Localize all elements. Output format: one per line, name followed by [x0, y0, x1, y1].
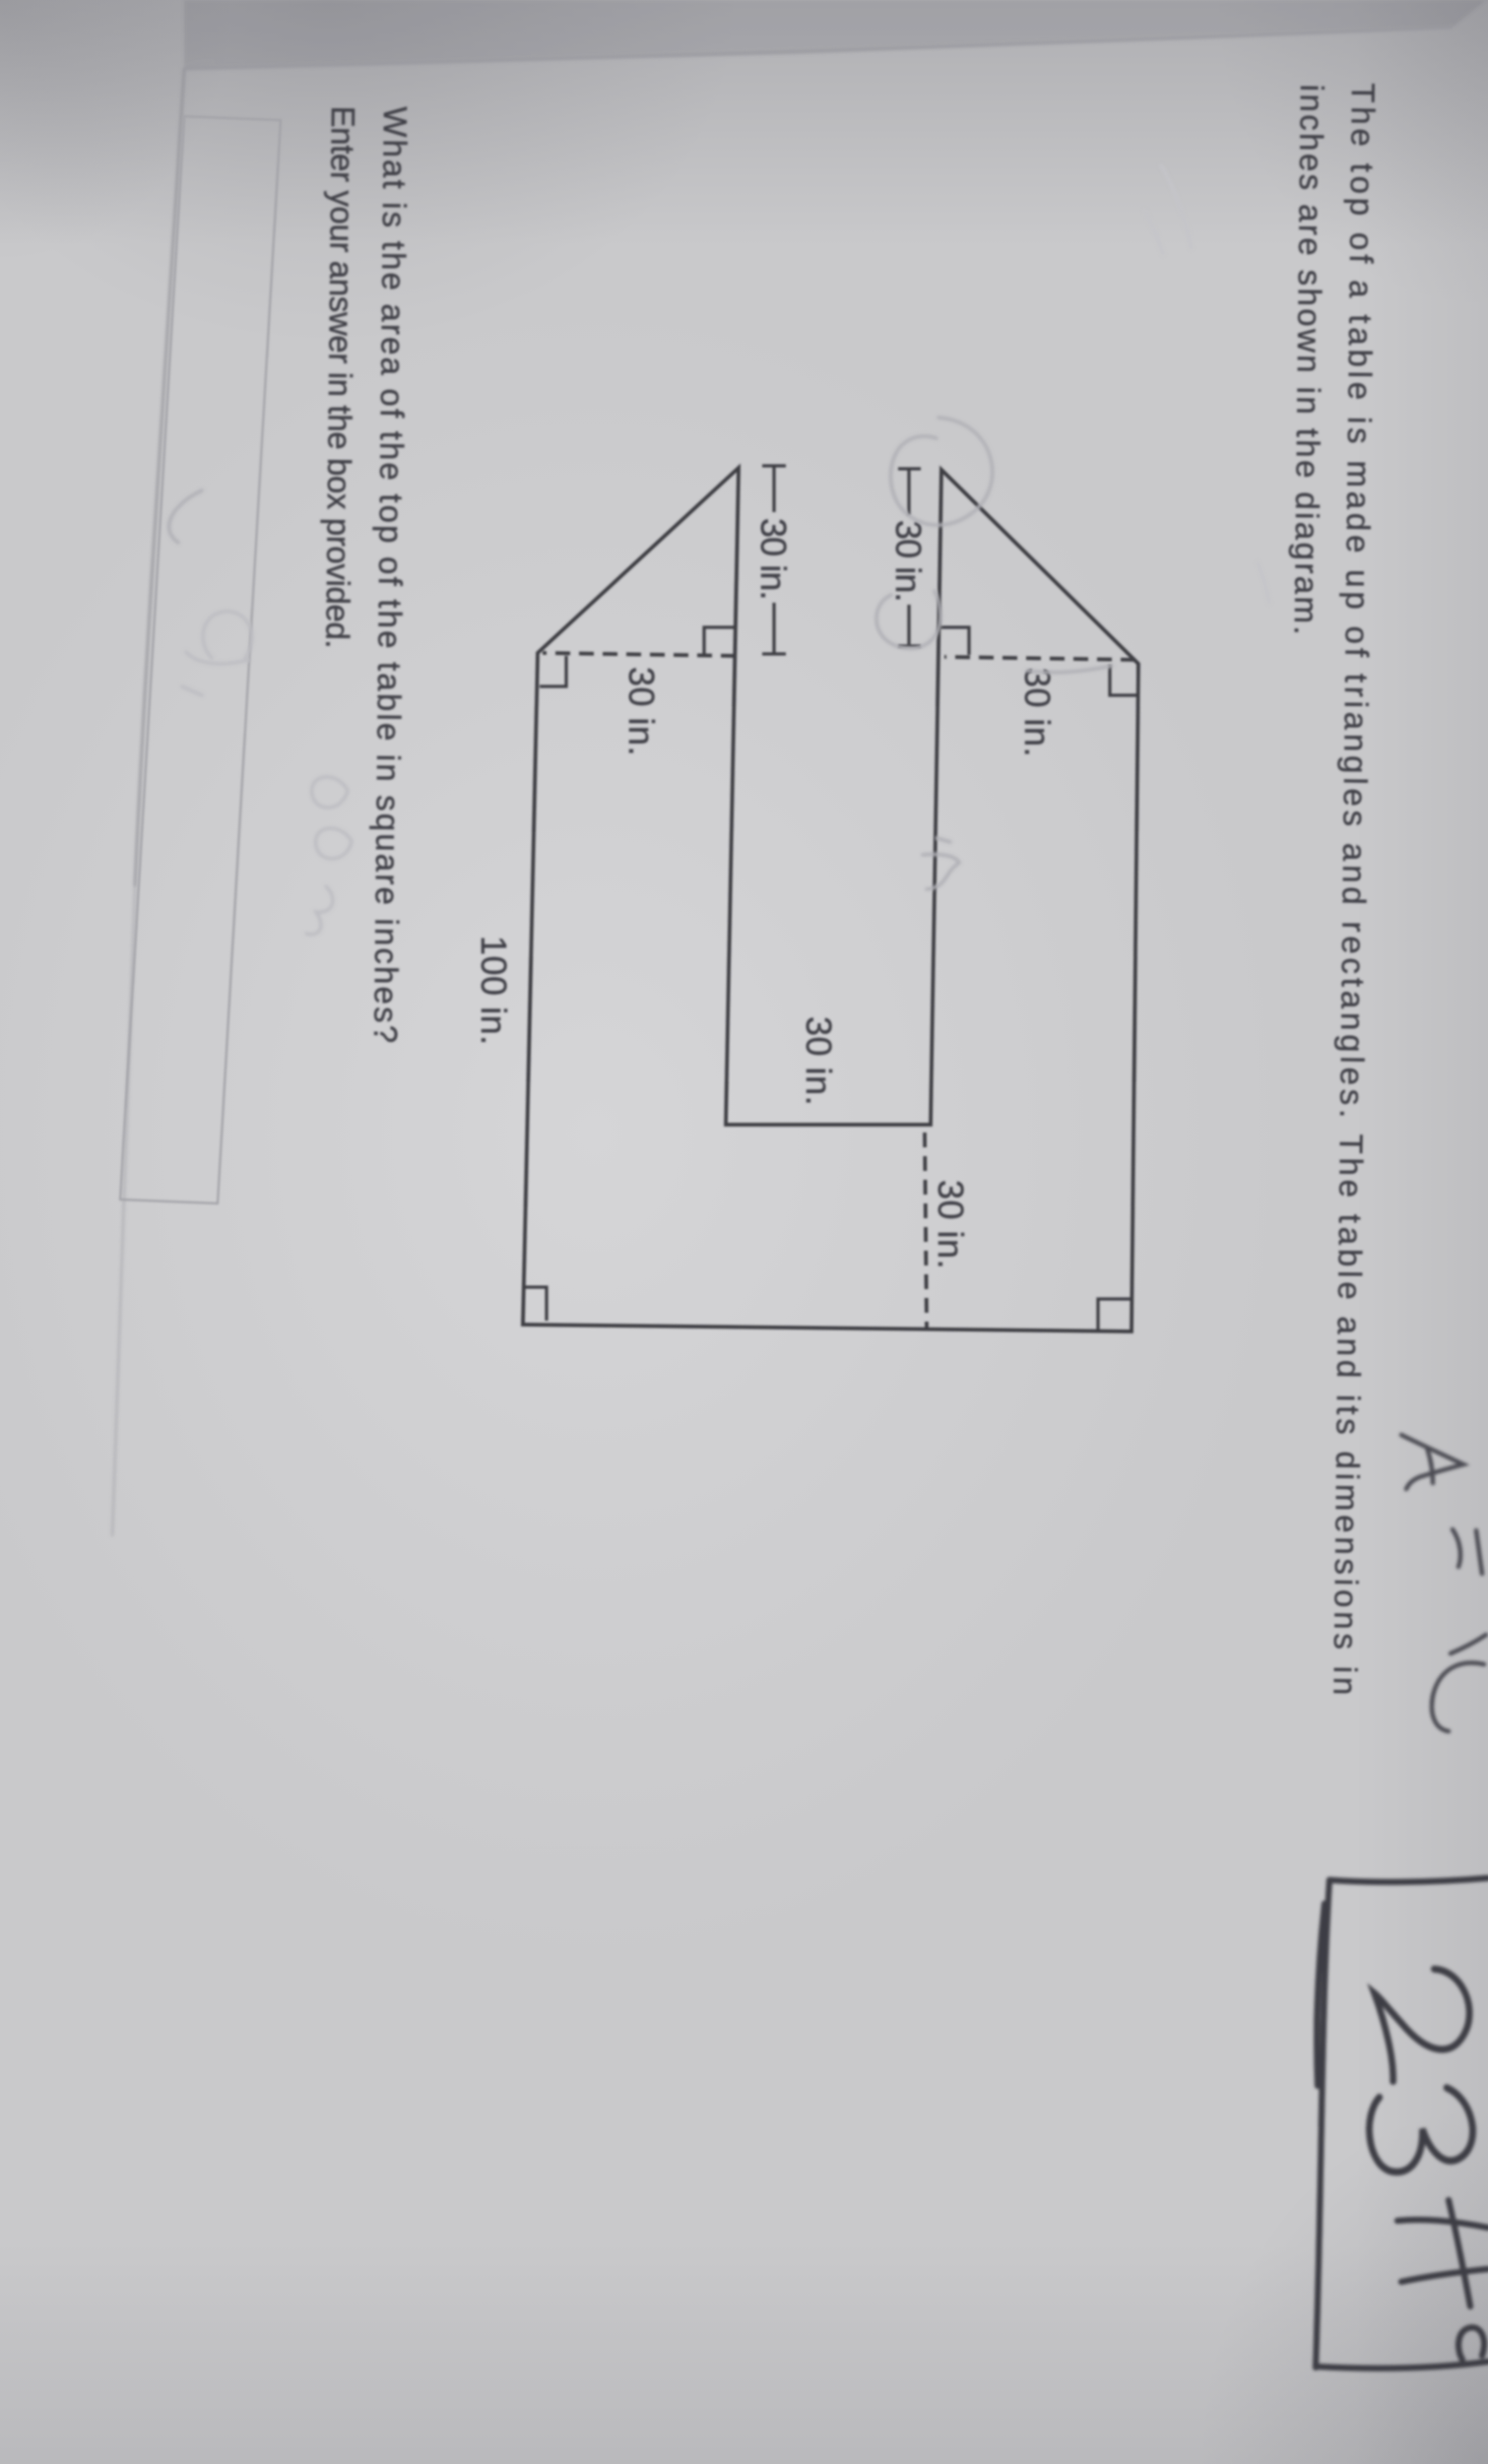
- svg-text:30 in.: 30 in.: [888, 520, 929, 603]
- svg-text:inches are shown in the diagra: inches are shown in the diagram.: [1288, 84, 1330, 635]
- svg-text:30 in.: 30 in.: [931, 1180, 971, 1269]
- svg-text:30 in.: 30 in.: [621, 667, 662, 756]
- svg-text:30 in.: 30 in.: [1017, 668, 1058, 757]
- svg-text:30 in.: 30 in.: [753, 518, 794, 601]
- svg-text:Enter your answer in the box p: Enter your answer in the box provided.: [319, 105, 361, 649]
- svg-text:What is the area of the top of: What is the area of the top of the table…: [367, 106, 414, 1044]
- svg-text:The top of a table is made up: The top of a table is made up of triangl…: [1326, 83, 1382, 1696]
- svg-text:100 in.: 100 in.: [474, 936, 514, 1046]
- svg-text:30 in.: 30 in.: [799, 1016, 839, 1106]
